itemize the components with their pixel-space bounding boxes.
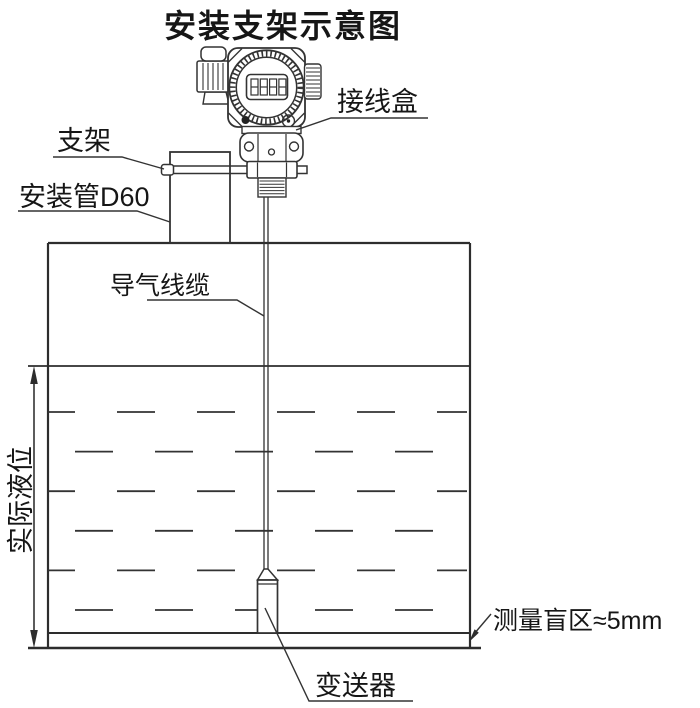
leader-bracket: [53, 157, 164, 169]
page-title: 安装支架示意图: [164, 8, 402, 44]
leader-air-cable: [147, 300, 264, 316]
level-dimension: 实际液位: [6, 366, 38, 648]
callout-transmitter: 变送器: [265, 608, 413, 701]
gland-cap: [201, 47, 226, 61]
hex-nut: [247, 162, 297, 179]
callout-mounting-pipe: 安装管D60: [18, 182, 170, 222]
probe-body: [258, 580, 278, 633]
label-air-cable: 导气线缆: [110, 272, 210, 300]
arrow-down-icon: [30, 630, 38, 648]
label-junction-box: 接线盒: [337, 87, 418, 117]
label-mounting-pipe: 安装管D60: [19, 182, 150, 212]
installation-diagram: 安装支架示意图 实际液位: [0, 0, 700, 708]
probe-taper: [258, 569, 278, 580]
gland-neck: [203, 92, 229, 104]
arrow-up-icon: [30, 366, 38, 384]
transmitter-head: [197, 47, 321, 162]
air-cable: [264, 197, 268, 569]
probe-transmitter: [258, 569, 278, 633]
label-actual-level: 实际液位: [6, 446, 36, 554]
flange-outline: [240, 133, 303, 162]
callout-air-cable: 导气线缆: [110, 272, 264, 316]
screw-icon: [242, 116, 250, 124]
thread-plug: [305, 64, 322, 99]
lcd-display: [247, 75, 288, 100]
threaded-nipple: [258, 178, 286, 197]
tank: [28, 243, 481, 648]
plug-body: [305, 64, 322, 99]
neck-flange: [240, 133, 303, 162]
label-bracket: 支架: [57, 126, 111, 156]
cable-gland: [197, 47, 230, 104]
label-transmitter: 变送器: [315, 671, 396, 701]
callout-bracket: 支架: [53, 126, 164, 169]
leader-junction-box: [296, 118, 428, 130]
label-blind-zone: 测量盲区≈5mm: [493, 607, 662, 635]
bracket-plate-end-cap: [162, 165, 174, 176]
leader-mounting-pipe: [18, 211, 170, 222]
nut-body: [247, 162, 297, 179]
callout-blind-zone: 测量盲区≈5mm: [469, 607, 662, 642]
screw-dot: [287, 119, 290, 122]
